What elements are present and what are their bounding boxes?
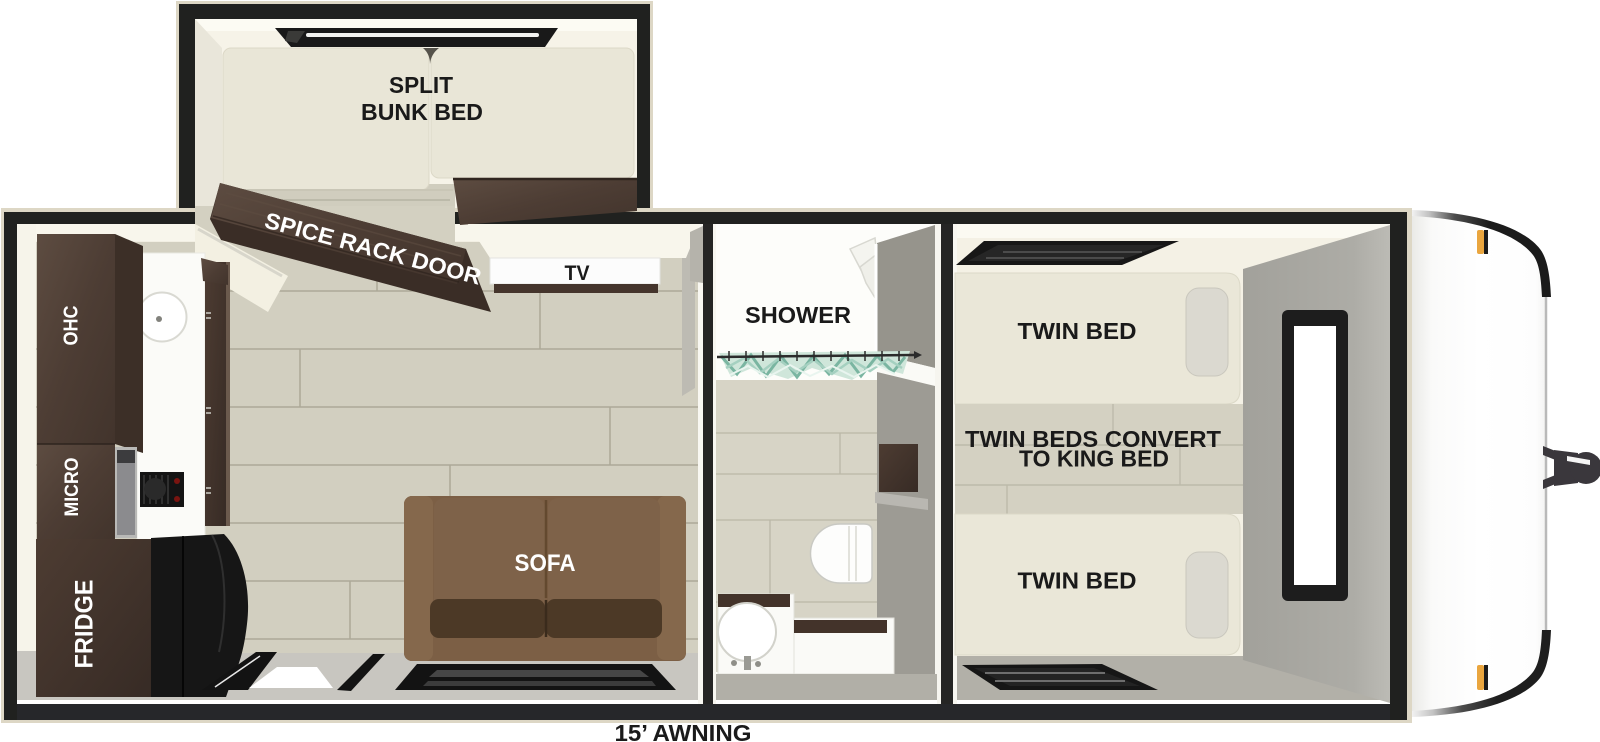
svg-text:BUNK BED: BUNK BED bbox=[361, 99, 483, 125]
svg-text:SHOWER: SHOWER bbox=[745, 302, 851, 328]
svg-text:TWIN BED: TWIN BED bbox=[1018, 568, 1137, 594]
svg-text:OHC: OHC bbox=[61, 306, 83, 346]
svg-text:SOFA: SOFA bbox=[515, 550, 576, 577]
svg-text:TWIN BED: TWIN BED bbox=[1018, 318, 1137, 344]
svg-text:FRIDGE: FRIDGE bbox=[71, 580, 99, 669]
svg-text:SPLIT: SPLIT bbox=[389, 72, 454, 98]
svg-text:MICRO: MICRO bbox=[61, 458, 83, 517]
svg-text:15’ AWNING: 15’ AWNING bbox=[615, 720, 752, 742]
svg-text:TO KING BED: TO KING BED bbox=[1019, 446, 1169, 472]
svg-text:TV: TV bbox=[565, 262, 590, 285]
